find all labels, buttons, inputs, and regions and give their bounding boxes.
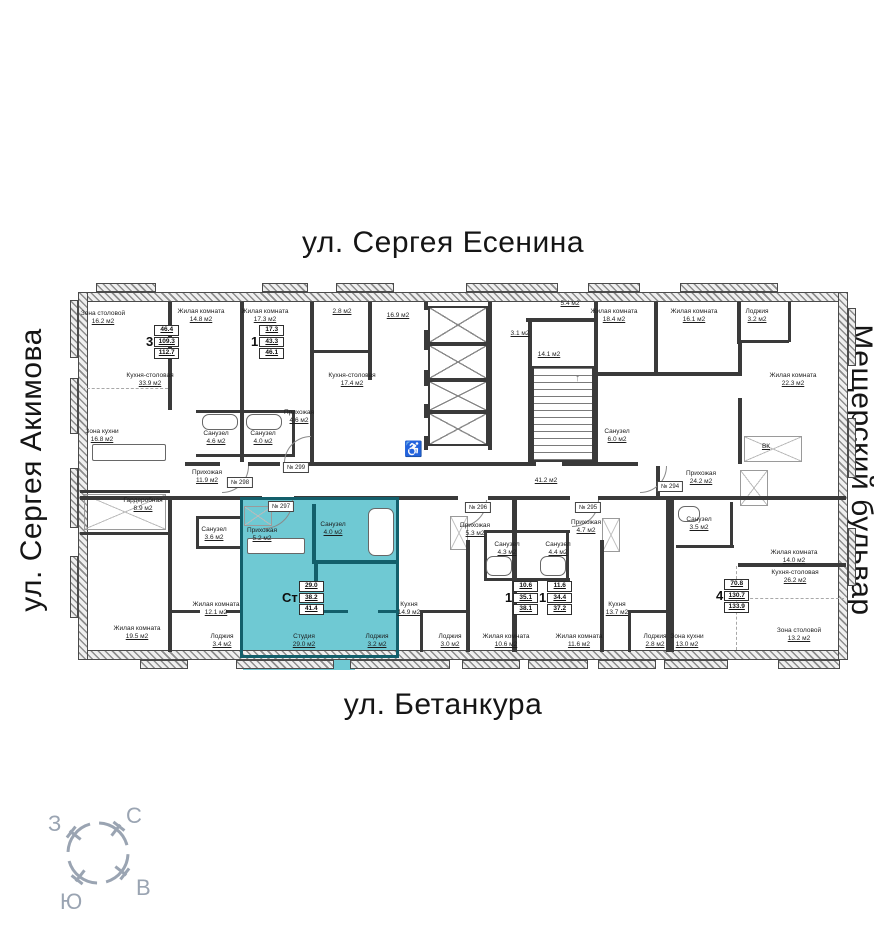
- room-name: Лоджия: [745, 308, 768, 316]
- room-area: ВК: [762, 443, 770, 450]
- apartment-type-label: 1: [539, 590, 546, 605]
- room-name: Лоджия: [365, 633, 388, 641]
- wall-segment: [738, 398, 742, 464]
- balcony-tab: [70, 300, 78, 358]
- room-label: Санузел4.3 м2: [494, 541, 519, 558]
- room-label: Прихожая11.9 м2: [192, 469, 222, 486]
- selected-apartment-wall: [312, 560, 396, 564]
- wall-segment: [484, 530, 570, 533]
- zone-divider-dashed: [740, 598, 844, 599]
- room-name: Прихожая: [247, 527, 277, 535]
- balcony-tab: [848, 528, 856, 586]
- room-area: 3.0 м2: [441, 641, 460, 648]
- wall-segment: [592, 372, 742, 376]
- balcony-tab: [236, 660, 334, 669]
- wall-segment: [628, 610, 631, 652]
- balcony-tab: [140, 660, 188, 669]
- wall-segment: [420, 610, 468, 613]
- balcony-tab: [848, 418, 856, 478]
- room-area: 4.7 м2: [577, 527, 596, 534]
- room-label: Лоджия2.8 м2: [643, 633, 666, 650]
- plumbing-fixture: [246, 414, 282, 430]
- apartment-area-value: 43.3: [259, 337, 284, 348]
- plumbing-fixture: [92, 444, 166, 461]
- balcony-tab: [262, 283, 308, 292]
- staircase: [532, 366, 594, 462]
- room-area: 41.2 м2: [535, 477, 558, 484]
- wall-segment: [196, 454, 294, 457]
- unit-number-plate: № 294: [657, 481, 683, 492]
- room-label: Санузел4.6 м2: [203, 430, 228, 447]
- balcony-tab: [466, 283, 558, 292]
- room-label: Лоджия3.2 м2: [365, 633, 388, 650]
- wall-segment: [526, 318, 598, 322]
- unit-number-plate: № 296: [465, 502, 491, 513]
- compass-west-label: З: [48, 813, 61, 835]
- wall-segment: [628, 610, 668, 613]
- room-label: Жилая комната22.3 м2: [770, 372, 817, 389]
- room-area: 4.6 м2: [207, 438, 226, 445]
- plumbing-fixture: [368, 508, 394, 556]
- room-name: Жилая комната: [483, 633, 530, 641]
- room-name: Санузел: [250, 430, 275, 438]
- apartment-area-value: 34.4: [547, 593, 572, 604]
- unit-number-plate: № 298: [227, 477, 253, 488]
- room-name: Санузел: [686, 516, 711, 524]
- unit-number-plate: № 295: [575, 502, 601, 513]
- room-label: Лоджия3.4 м2: [210, 633, 233, 650]
- wall-segment: [788, 302, 791, 342]
- room-label: Жилая комната10.6 м2: [483, 633, 530, 650]
- wall-segment: [368, 302, 372, 380]
- room-label: ВК: [762, 443, 770, 451]
- room-label: Зона кухни16.8 м2: [85, 428, 118, 445]
- room-label: Зона столовой16.2 м2: [81, 310, 125, 327]
- room-area: 8.9 м2: [134, 505, 153, 512]
- room-name: Санузел: [545, 541, 570, 549]
- wall-segment: [168, 500, 172, 652]
- room-name: Жилая комната: [671, 308, 718, 316]
- apartment-area-value: 17.3: [259, 325, 284, 336]
- room-label: Санузел4.0 м2: [320, 521, 345, 538]
- apartment-info-box[interactable]: 110.635.138.1: [505, 581, 538, 615]
- room-label: Жилая комната12.1 м2: [193, 601, 240, 618]
- room-name: Санузел: [203, 430, 228, 438]
- room-area: 10.6 м2: [495, 641, 518, 648]
- apartment-areas: 29.038.241.4: [299, 581, 324, 615]
- room-area: 14.0 м2: [783, 557, 806, 564]
- balcony-tab: [598, 660, 656, 669]
- room-label: Зона столовой13.2 м2: [777, 627, 821, 644]
- room-name: Лоджия: [438, 633, 461, 641]
- balcony-tab: [778, 660, 840, 669]
- wall-segment: [80, 532, 170, 535]
- room-name: Жилая комната: [771, 549, 818, 557]
- exterior-wall: [838, 292, 848, 660]
- room-area: 2.8 м2: [333, 308, 352, 315]
- closet-box: [744, 436, 802, 462]
- elevator-shaft: [428, 306, 488, 344]
- selected-apartment-wall: [378, 610, 396, 613]
- room-label: Прихожая5.3 м2: [460, 522, 490, 539]
- door-gap: [536, 462, 562, 466]
- room-label: Санузел4.4 м2: [545, 541, 570, 558]
- closet-box: [602, 518, 620, 552]
- elevator-shaft: [428, 412, 488, 446]
- balcony-tab: [664, 660, 728, 669]
- selected-apartment-wall: [312, 504, 316, 564]
- apartment-type-label: 1: [251, 334, 258, 349]
- room-label: Прихожая4.7 м2: [571, 519, 601, 536]
- wall-segment: [488, 302, 492, 450]
- room-label: Санузел3.6 м2: [201, 526, 226, 543]
- apartment-area-value: 46.1: [259, 348, 284, 359]
- room-name: Кухня-столовая: [328, 372, 375, 380]
- room-label: 5.4 м2: [561, 300, 580, 308]
- balcony-tab: [848, 308, 856, 366]
- room-area: 4.4 м2: [549, 549, 568, 556]
- apartment-area-value: 10.6: [513, 581, 538, 592]
- room-name: Зона кухни: [670, 633, 703, 641]
- room-label: Прихожая4.6 м2: [284, 409, 314, 426]
- room-name: Жилая комната: [178, 308, 225, 316]
- apartment-area-value: 37.2: [547, 604, 572, 615]
- balcony-tab: [588, 283, 640, 292]
- room-area: 3.2 м2: [748, 316, 767, 323]
- room-name: Жилая комната: [591, 308, 638, 316]
- room-area: 29.0 м2: [293, 641, 316, 648]
- room-label: Прихожая24.2 м2: [686, 470, 716, 487]
- balcony-tab: [350, 660, 450, 669]
- room-area: 16.1 м2: [683, 316, 706, 323]
- balcony-tab: [70, 556, 78, 618]
- plumbing-fixture: [202, 414, 238, 430]
- apartment-areas: 10.635.138.1: [513, 581, 538, 615]
- stair-direction-arrow-icon: ↑: [575, 374, 580, 384]
- apartment-areas: 70.8130.7133.9: [724, 579, 749, 613]
- room-label: Кухня-столовая17.4 м2: [328, 372, 375, 389]
- room-name: Жилая комната: [114, 625, 161, 633]
- room-area: 26.2 м2: [784, 577, 807, 584]
- wall-segment: [185, 462, 660, 466]
- apartment-area-value: 29.0: [299, 581, 324, 592]
- room-area: 19.5 м2: [126, 633, 149, 640]
- room-area: 16.2 м2: [92, 318, 115, 325]
- room-area: 3.5 м2: [690, 524, 709, 531]
- room-name: Жилая комната: [242, 308, 289, 316]
- apartment-area-value: 41.4: [299, 604, 324, 615]
- room-area: 11.9 м2: [196, 477, 218, 484]
- wall-segment: [737, 302, 741, 344]
- room-name: Кухня-столовая: [771, 569, 818, 577]
- room-label: Гардеробная8.9 м2: [123, 497, 162, 514]
- balcony-tab: [336, 283, 394, 292]
- room-area: 17.3 м2: [254, 316, 277, 323]
- balcony-tab: [680, 283, 778, 292]
- balcony-tab: [528, 660, 588, 669]
- room-label: 14.1 м2: [538, 351, 561, 359]
- room-area: 16.9 м2: [387, 312, 410, 319]
- wall-segment: [196, 516, 199, 549]
- balcony-tab: [70, 378, 78, 434]
- room-area: 13.7 м2: [606, 609, 629, 616]
- room-label: Зона кухни13.0 м2: [670, 633, 703, 650]
- room-name: Зона столовой: [81, 310, 125, 318]
- room-name: Прихожая: [284, 409, 314, 417]
- room-area: 3.1 м2: [511, 330, 530, 337]
- apartment-area-value: 112.7: [154, 348, 179, 359]
- room-name: Студия: [293, 633, 316, 641]
- wall-segment: [420, 610, 423, 652]
- apartment-info-box[interactable]: 111.634.437.2: [539, 581, 572, 615]
- plumbing-fixture: [486, 556, 512, 576]
- room-area: 4.6 м2: [290, 417, 309, 424]
- room-area: 5.3 м2: [466, 530, 485, 537]
- unit-number-plate: № 299: [283, 462, 309, 473]
- street-label-bottom: ул. Бетанкура: [344, 688, 543, 722]
- room-area: 22.3 м2: [782, 380, 805, 387]
- room-name: Санузел: [320, 521, 345, 529]
- room-area: 16.8 м2: [91, 436, 114, 443]
- street-label-left: ул. Сергея Акимова: [15, 328, 49, 612]
- balcony-tab: [70, 468, 78, 528]
- apartment-area-value: 38.2: [299, 593, 324, 604]
- compass-north-label: С: [126, 805, 142, 827]
- balcony-tab: [462, 660, 520, 669]
- wall-segment: [730, 502, 733, 548]
- wall-segment: [196, 410, 294, 413]
- room-name: Жилая комната: [770, 372, 817, 380]
- room-label: Санузел4.0 м2: [250, 430, 275, 447]
- elevator-shaft: [428, 380, 488, 412]
- wall-segment: [654, 302, 658, 374]
- room-area: 4.0 м2: [324, 529, 343, 536]
- room-label: Жилая комната14.8 м2: [178, 308, 225, 325]
- room-area: 24.2 м2: [690, 478, 713, 485]
- room-area: 14.9 м2: [398, 609, 421, 616]
- room-label: 2.8 м2: [333, 308, 352, 316]
- room-area: 14.8 м2: [190, 316, 213, 323]
- apartment-area-value: 35.1: [513, 593, 538, 604]
- wall-segment: [666, 500, 674, 652]
- room-label: Санузел6.0 м2: [604, 428, 629, 445]
- room-name: Лоджия: [643, 633, 666, 641]
- room-label: Жилая комната17.3 м2: [242, 308, 289, 325]
- plumbing-fixture: [540, 556, 566, 576]
- compass-south-label: Ю: [60, 891, 82, 913]
- exterior-wall: [78, 650, 848, 660]
- room-area: 17.4 м2: [341, 380, 364, 387]
- wheelchair-accessible-icon: ♿: [404, 442, 423, 457]
- unit-number-plate: № 297: [268, 501, 294, 512]
- room-label: Лоджия3.2 м2: [745, 308, 768, 325]
- apartment-areas: 46.4109.3112.7: [154, 325, 179, 359]
- street-label-top: ул. Сергея Есенина: [302, 226, 584, 260]
- room-area: 5.2 м2: [253, 535, 272, 542]
- room-name: Санузел: [201, 526, 226, 534]
- apartment-area-value: 70.8: [724, 579, 749, 590]
- wall-segment: [466, 540, 470, 652]
- room-label: Кухня-столовая33.9 м2: [126, 372, 173, 389]
- room-name: Жилая комната: [193, 601, 240, 609]
- room-label: Жилая комната16.1 м2: [671, 308, 718, 325]
- room-name: Прихожая: [460, 522, 490, 530]
- apartment-areas: 17.343.346.1: [259, 325, 284, 359]
- room-area: 3.6 м2: [205, 534, 224, 541]
- room-area: 13.0 м2: [676, 641, 699, 648]
- wall-segment: [312, 350, 370, 353]
- room-name: Кухня-столовая: [126, 372, 173, 380]
- apartment-area-value: 46.4: [154, 325, 179, 336]
- room-name: Гардеробная: [123, 497, 162, 505]
- room-name: Санузел: [494, 541, 519, 549]
- room-area: 12.1 м2: [205, 609, 228, 616]
- room-name: Санузел: [604, 428, 629, 436]
- room-name: Прихожая: [192, 469, 222, 477]
- apartment-area-value: 133.9: [724, 602, 749, 613]
- room-label: Кухня14.9 м2: [398, 601, 421, 618]
- room-label: Кухня-столовая26.2 м2: [771, 569, 818, 586]
- wall-segment: [240, 302, 244, 464]
- room-area: 3.4 м2: [213, 641, 232, 648]
- room-label: Прихожая5.2 м2: [247, 527, 277, 544]
- wall-segment: [737, 340, 789, 343]
- apartment-type-label: Ст: [282, 590, 298, 605]
- wall-segment: [196, 546, 242, 549]
- wall-segment: [512, 500, 517, 652]
- room-label: 41.2 м2: [535, 477, 558, 485]
- room-name: Жилая комната: [556, 633, 603, 641]
- room-label: Студия29.0 м2: [293, 633, 316, 650]
- room-area: 3.2 м2: [368, 641, 387, 648]
- room-area: 33.9 м2: [139, 380, 162, 387]
- compass-circle: [18, 775, 178, 935]
- wall-segment: [676, 545, 734, 548]
- floorplan-page: ул. Сергея Есенина ул. Бетанкура ул. Сер…: [0, 0, 891, 950]
- room-area: 5.4 м2: [561, 300, 580, 307]
- wall-segment: [196, 516, 242, 519]
- wall-segment: [80, 490, 170, 493]
- room-area: 4.0 м2: [254, 438, 273, 445]
- apartment-type-label: 3: [146, 334, 153, 349]
- apartment-type-label: 1: [505, 590, 512, 605]
- elevator-shaft: [428, 344, 488, 380]
- apartment-area-value: 11.6: [547, 581, 572, 592]
- room-label: 16.9 м2: [387, 312, 410, 320]
- room-label: Жилая комната11.6 м2: [556, 633, 603, 650]
- room-label: Жилая комната18.4 м2: [591, 308, 638, 325]
- exterior-wall: [78, 292, 848, 302]
- room-area: 4.3 м2: [498, 549, 517, 556]
- balcony-tab: [96, 283, 156, 292]
- door-swing-arc: [284, 436, 311, 463]
- wall-segment: [594, 302, 598, 466]
- apartment-area-value: 38.1: [513, 604, 538, 615]
- room-name: Кухня: [606, 601, 629, 609]
- room-name: Лоджия: [210, 633, 233, 641]
- room-name: Прихожая: [571, 519, 601, 527]
- room-name: Зона столовой: [777, 627, 821, 635]
- room-name: Прихожая: [686, 470, 716, 478]
- room-label: 3.1 м2: [511, 330, 530, 338]
- room-name: Кухня: [398, 601, 421, 609]
- room-label: Жилая комната19.5 м2: [114, 625, 161, 642]
- room-label: Лоджия3.0 м2: [438, 633, 461, 650]
- room-label: Кухня13.7 м2: [606, 601, 629, 618]
- apartment-area-value: 109.3: [154, 337, 179, 348]
- room-area: 6.0 м2: [608, 436, 627, 443]
- wall-segment: [738, 340, 742, 374]
- room-area: 18.4 м2: [603, 316, 626, 323]
- room-area: 11.6 м2: [568, 641, 590, 648]
- apartment-area-value: 130.7: [724, 591, 749, 602]
- apartment-areas: 11.634.437.2: [547, 581, 572, 615]
- compass-east-label: В: [136, 877, 151, 899]
- room-area: 14.1 м2: [538, 351, 561, 358]
- apartment-info-box[interactable]: 346.4109.3112.7: [146, 325, 179, 359]
- closet-box: [740, 470, 768, 506]
- room-name: Зона кухни: [85, 428, 118, 436]
- room-area: 2.8 м2: [646, 641, 665, 648]
- apartment-type-label: 4: [716, 588, 723, 603]
- apartment-info-box-selected[interactable]: Ст29.038.241.4: [282, 581, 324, 615]
- compass-icon: С З В Ю: [18, 775, 178, 935]
- room-area: 13.2 м2: [788, 635, 811, 642]
- room-label: Жилая комната14.0 м2: [771, 549, 818, 566]
- room-label: Санузел3.5 м2: [686, 516, 711, 533]
- apartment-info-box[interactable]: 117.343.346.1: [251, 325, 284, 359]
- apartment-info-box[interactable]: 470.8130.7133.9: [716, 579, 749, 613]
- exterior-wall: [78, 292, 88, 660]
